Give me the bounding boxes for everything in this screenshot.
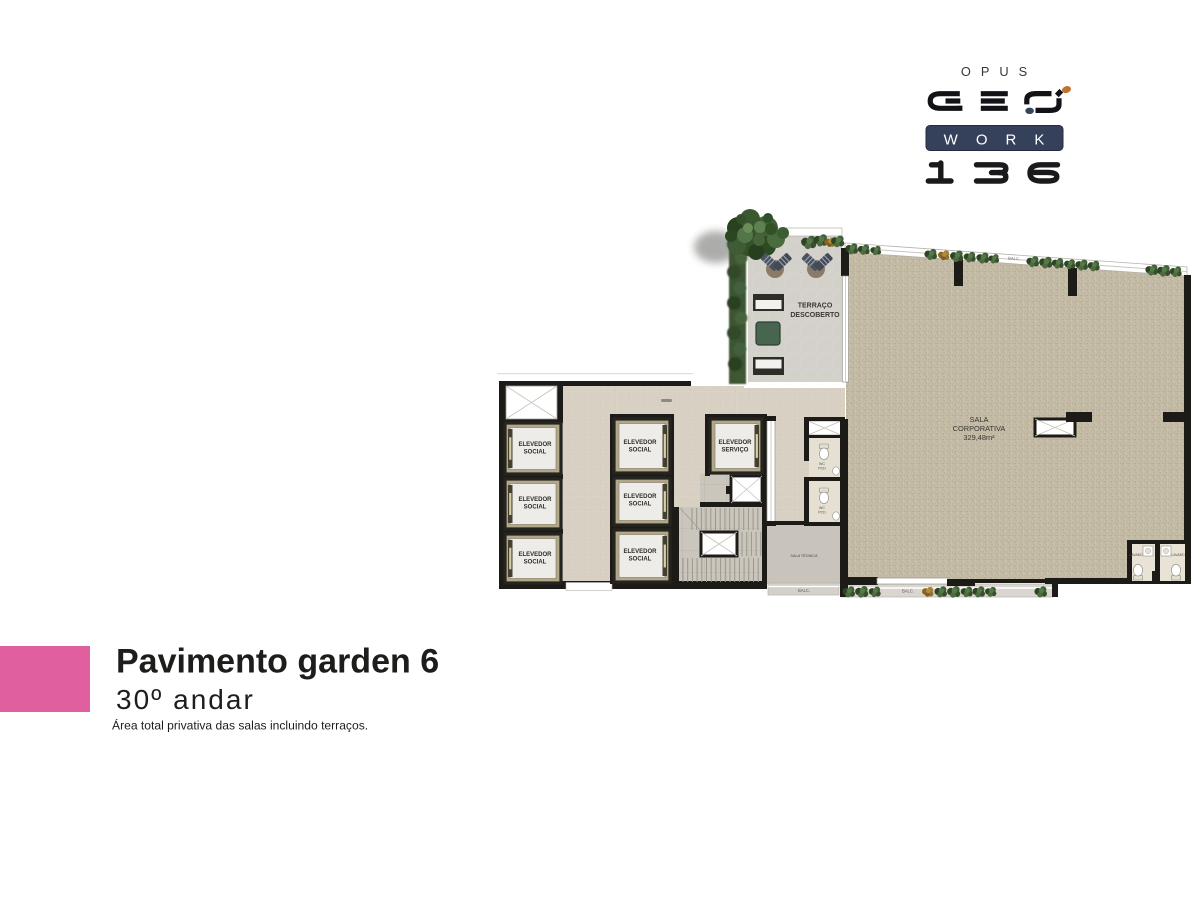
svg-text:ELEVEDOR: ELEVEDOR bbox=[623, 549, 657, 555]
svg-text:DESCOBERTO: DESCOBERTO bbox=[790, 312, 840, 319]
svg-text:SOCIAL: SOCIAL bbox=[524, 450, 547, 456]
svg-text:ELEVEDOR: ELEVEDOR bbox=[518, 442, 552, 448]
svg-text:WC: WC bbox=[819, 506, 825, 510]
svg-text:329,48m²: 329,48m² bbox=[963, 433, 995, 442]
svg-text:BALC.: BALC. bbox=[798, 588, 810, 593]
svg-text:30º andar: 30º andar bbox=[116, 684, 255, 715]
svg-text:OPUS: OPUS bbox=[961, 64, 1037, 79]
svg-text:TERRAÇO: TERRAÇO bbox=[798, 303, 833, 310]
svg-text:WC: WC bbox=[819, 462, 825, 466]
svg-text:LAVABO: LAVABO bbox=[1129, 553, 1142, 557]
svg-text:ELEVEDOR: ELEVEDOR bbox=[623, 494, 657, 500]
svg-text:SOCIAL: SOCIAL bbox=[524, 560, 547, 566]
svg-text:ELEVEDOR: ELEVEDOR bbox=[518, 552, 552, 558]
svg-text:ELEVEDOR: ELEVEDOR bbox=[518, 497, 552, 503]
svg-text:SERVIÇO: SERVIÇO bbox=[722, 448, 749, 454]
svg-text:ELEVEDOR: ELEVEDOR bbox=[623, 440, 657, 446]
svg-text:Pavimento garden 6: Pavimento garden 6 bbox=[116, 643, 439, 681]
svg-text:SOCIAL: SOCIAL bbox=[629, 502, 652, 508]
svg-text:PCD: PCD bbox=[818, 511, 826, 515]
svg-text:SOCIAL: SOCIAL bbox=[524, 505, 547, 511]
svg-text:BALC.: BALC. bbox=[902, 589, 914, 594]
svg-text:WORK: WORK bbox=[944, 131, 1063, 148]
svg-text:SOCIAL: SOCIAL bbox=[629, 557, 652, 563]
svg-text:CORPORATIVA: CORPORATIVA bbox=[953, 424, 1006, 433]
svg-text:SALA: SALA bbox=[970, 415, 989, 424]
svg-text:ELEVEDOR: ELEVEDOR bbox=[718, 440, 752, 446]
svg-text:LAVABO: LAVABO bbox=[1171, 553, 1184, 557]
svg-text:BALC.: BALC. bbox=[1008, 256, 1020, 262]
svg-text:PCD: PCD bbox=[818, 467, 826, 471]
svg-text:SALA TÉCNICA: SALA TÉCNICA bbox=[790, 553, 818, 558]
svg-text:SOCIAL: SOCIAL bbox=[629, 448, 652, 454]
svg-text:Área total privativa das salas: Área total privativa das salas incluindo… bbox=[112, 718, 368, 733]
